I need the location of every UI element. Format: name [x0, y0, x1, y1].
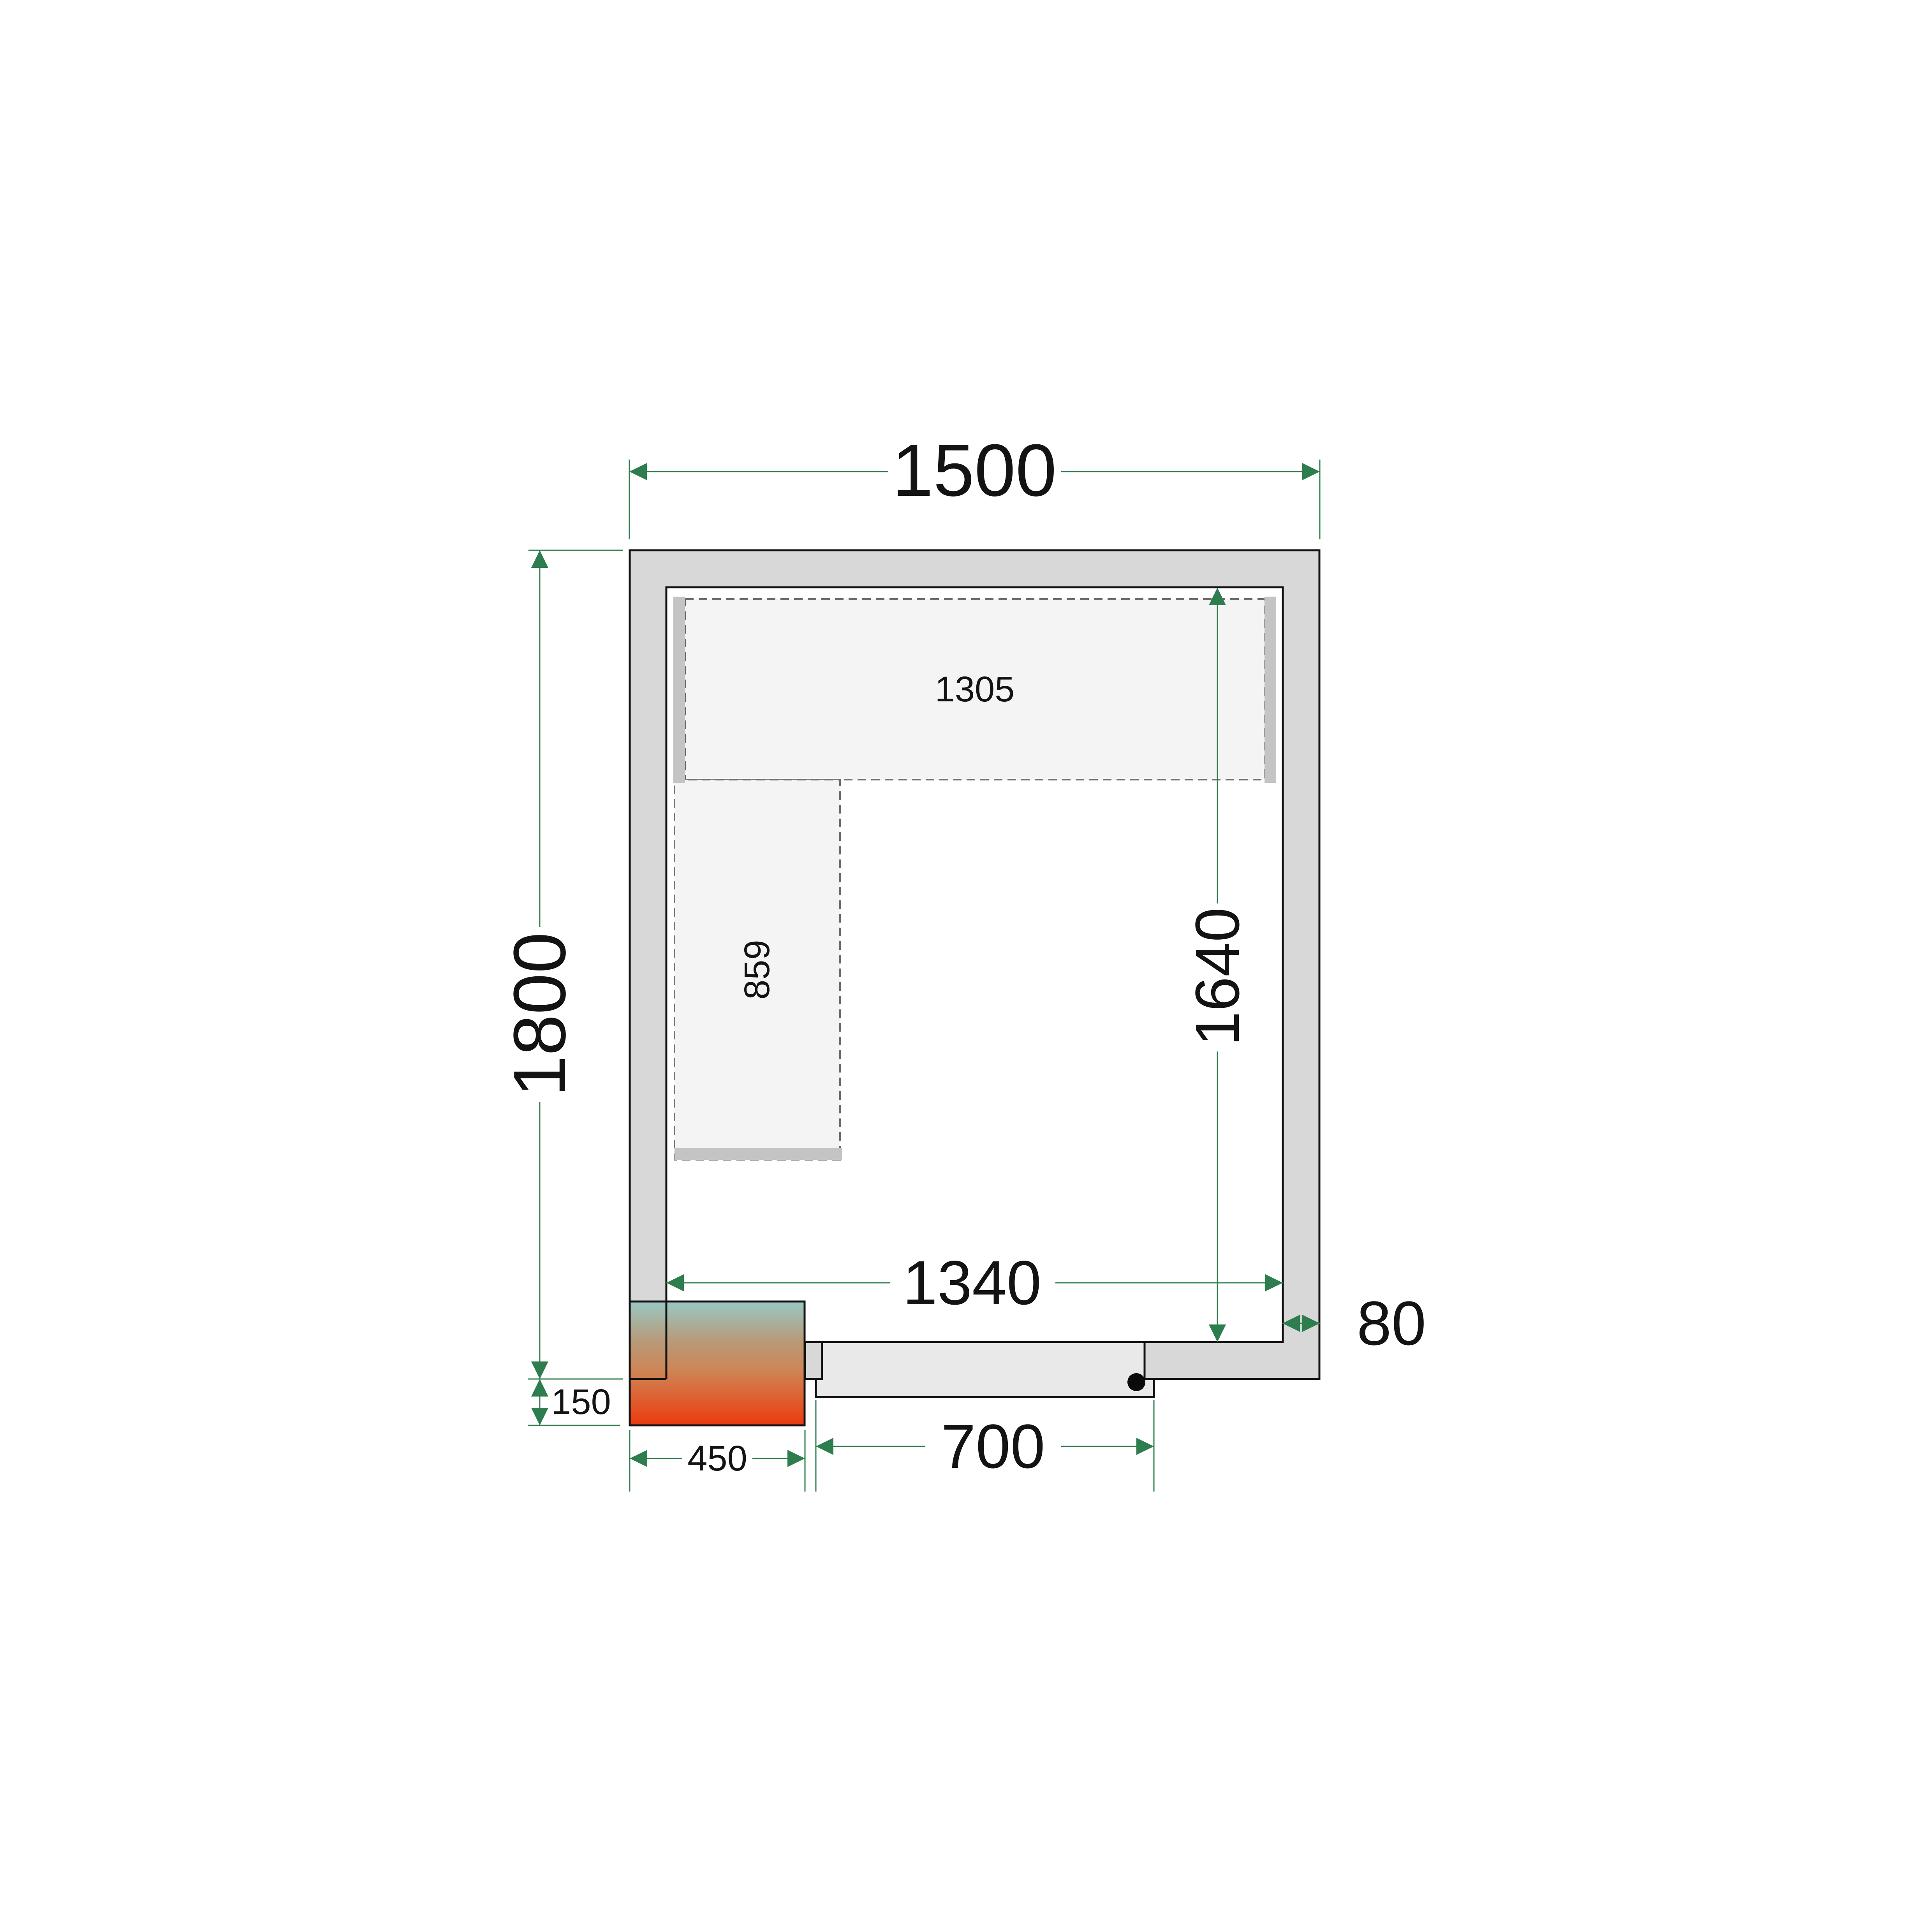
- arrow-1640-top: [1209, 588, 1226, 605]
- arrow-1340-left: [666, 1274, 684, 1291]
- dim-cooling-unit-protrusion-label: 150: [551, 1384, 611, 1420]
- arrow-450-left: [630, 1450, 647, 1467]
- top-shelf-length-label: 1305: [935, 671, 1015, 707]
- floor-plan-drawing: [0, 0, 1932, 1932]
- dim-outer-height-label: 1800: [503, 932, 577, 1097]
- dim-inner-width-label: 1340: [903, 1252, 1041, 1314]
- dim-wall-thickness-label: 80: [1357, 1292, 1426, 1354]
- arrow-150-top: [531, 1379, 548, 1397]
- door-handle-dot: [1127, 1373, 1145, 1391]
- dim-inner-height-label: 1640: [1186, 907, 1249, 1046]
- cooling-unit: [630, 1302, 805, 1425]
- dim-door-width-label: 700: [941, 1415, 1045, 1478]
- top-shelf-right-bracket: [1265, 597, 1276, 783]
- arrow-700-right: [1136, 1438, 1154, 1455]
- left-shelf-bottom-bracket: [675, 1148, 842, 1160]
- dim-outer-width-label: 1500: [892, 433, 1057, 507]
- arrow-450-right: [787, 1450, 805, 1467]
- arrow-1340-right: [1265, 1274, 1283, 1291]
- arrow-1500-left: [629, 463, 647, 480]
- arrow-1640-bottom: [1209, 1324, 1226, 1342]
- top-shelf-left-bracket: [673, 597, 685, 783]
- arrow-1500-right: [1302, 463, 1320, 480]
- arrow-150-bottom: [531, 1408, 548, 1425]
- arrow-700-left: [816, 1438, 833, 1455]
- dim-cooling-unit-width-label: 450: [687, 1441, 747, 1476]
- door-leaf: [816, 1342, 1154, 1397]
- arrow-1800-bottom: [531, 1361, 548, 1379]
- left-shelf-length-label: 859: [739, 940, 775, 1000]
- door-jamb-stub: [805, 1342, 822, 1379]
- floor-plan-canvas: 1500 1800 1640 1340 700 80 1305 859 450 …: [0, 0, 1932, 1932]
- arrow-1800-top: [531, 550, 548, 568]
